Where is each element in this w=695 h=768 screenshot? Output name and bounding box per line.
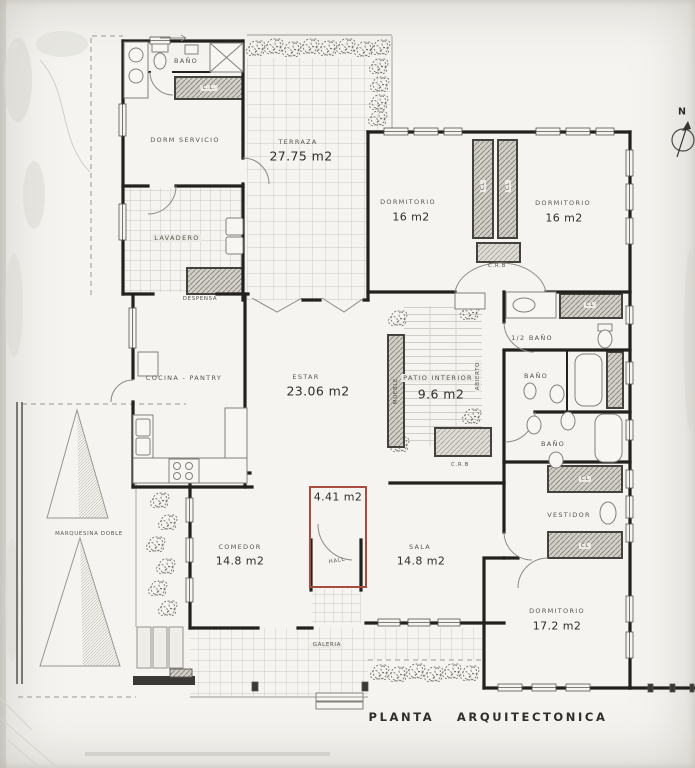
area-comedor: 14.8 m2 [216, 555, 265, 568]
label-closet-5: CL [579, 543, 591, 549]
area-sala: 14.8 m2 [397, 555, 446, 568]
label-cocina: COCINA - PANTRY [146, 374, 222, 382]
area-dormitorio-1: 16 m2 [392, 211, 429, 224]
label-dorm-servicio: DORM SERVICIO [150, 136, 220, 144]
label-medio-bano: 1/2 BAÑO [511, 334, 553, 342]
label-crb-2: C.R.B [451, 462, 469, 468]
label-despensa: DESPENSA [183, 296, 217, 302]
label-dormitorio-2: DORMITORIO [535, 199, 591, 207]
area-dormitorio-2: 16 m2 [545, 212, 582, 225]
label-bano-2: BAÑO [541, 440, 565, 448]
label-lavadero: LAVADERO [152, 234, 201, 242]
north-label: N [678, 107, 686, 118]
label-closet-1: CL [480, 180, 486, 192]
label-comedor: COMEDOR [218, 543, 261, 551]
area-estar: 23.06 m2 [286, 384, 349, 399]
marquesina-carport [17, 402, 120, 684]
label-closet-4: CL [579, 476, 591, 482]
north-arrow-icon [672, 121, 694, 157]
label-bano-servicio: BAÑO [174, 57, 198, 65]
label-bano-1: BAÑO [524, 372, 548, 380]
label-patio-interior: PATIO INTERIOR [401, 374, 475, 382]
floor-plan-sheet: BAÑO C.L. DORM SERVICIO TERRAZA 27.75 m2… [0, 0, 695, 768]
plan-title: PLANTA ARQUITECTONICA [369, 710, 608, 724]
label-terraza: TERRAZA [278, 138, 317, 146]
label-estar: ESTAR [292, 373, 319, 381]
label-vestidor: VESTIDOR [547, 511, 591, 519]
label-crb-1: C.R.B [488, 263, 506, 269]
label-dormitorio-3: DORMITORIO [529, 607, 585, 615]
label-dormitorio-1: DORMITORIO [380, 198, 436, 206]
area-patio-interior: 9.6 m2 [418, 387, 464, 402]
label-closet-3: CL [584, 302, 596, 308]
label-marquesina: MARQUESINA DOBLE [55, 531, 123, 537]
label-sala: SALA [409, 543, 431, 551]
label-mueble: MUEBLE [393, 378, 399, 404]
area-terraza: 27.75 m2 [269, 149, 332, 164]
area-hall: 4.41 m2 [314, 491, 363, 504]
area-dormitorio-3: 17.2 m2 [533, 620, 582, 633]
label-closet-2: CL [505, 180, 511, 192]
label-galeria: GALERIA [311, 642, 343, 648]
label-closet-servicio: C.L. [201, 85, 218, 91]
label-abierto: ABIERTO [475, 360, 481, 392]
